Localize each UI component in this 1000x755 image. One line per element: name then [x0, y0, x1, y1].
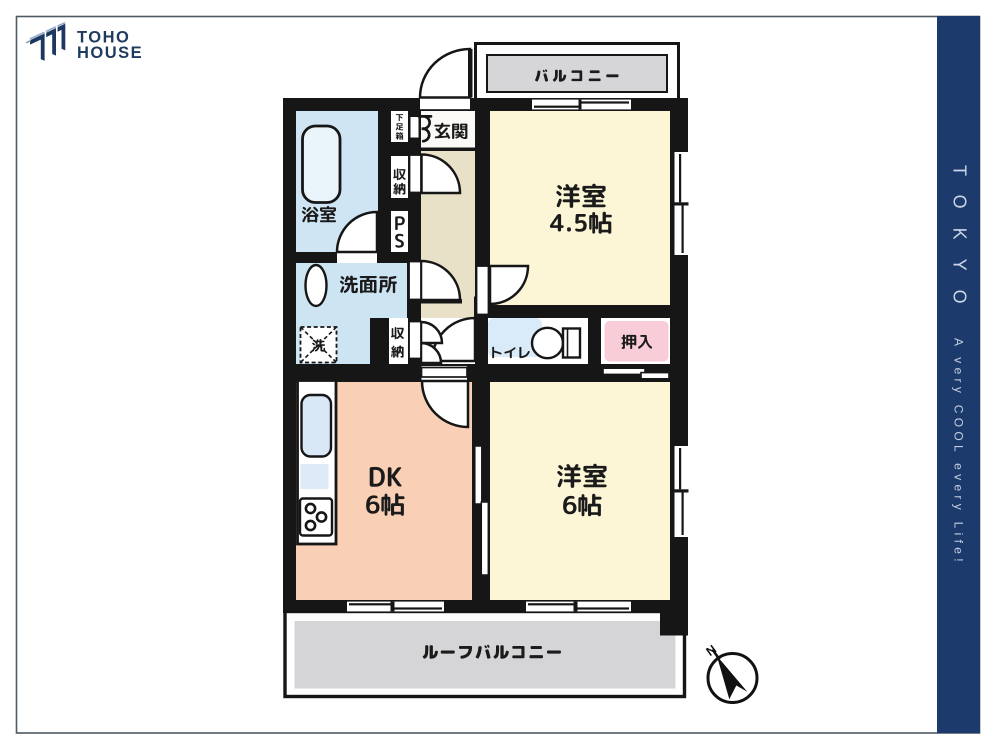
- svg-text:TOKYO: TOKYO: [950, 165, 970, 323]
- svg-text:HOUSE: HOUSE: [77, 44, 143, 62]
- svg-text:A very COOL every Life!: A very COOL every Life!: [952, 338, 966, 566]
